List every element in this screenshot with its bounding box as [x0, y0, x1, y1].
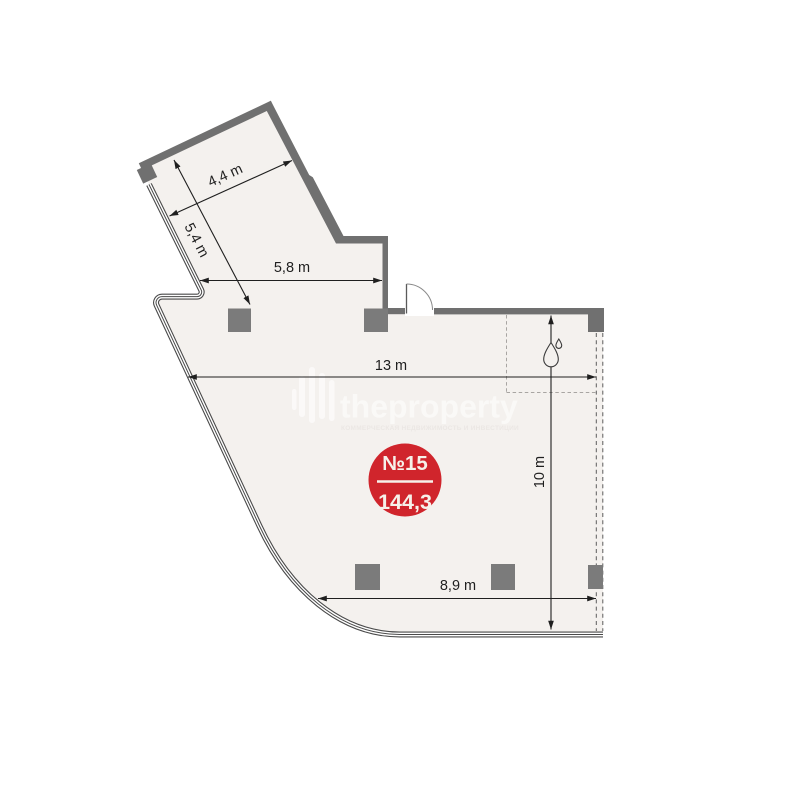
svg-text:144,3: 144,3: [378, 490, 432, 514]
svg-text:№15: №15: [382, 452, 428, 475]
svg-text:13 m: 13 m: [375, 358, 407, 374]
svg-text:8,9 m: 8,9 m: [440, 578, 476, 594]
svg-text:10 m: 10 m: [532, 456, 548, 488]
svg-text:КОММЕРЧЕСКАЯ НЕДВИЖИМОСТЬ И ИН: КОММЕРЧЕСКАЯ НЕДВИЖИМОСТЬ И ИНВЕСТИЦИИ: [341, 425, 519, 432]
svg-text:theproperty: theproperty: [340, 389, 518, 425]
svg-text:5,8 m: 5,8 m: [274, 260, 310, 276]
